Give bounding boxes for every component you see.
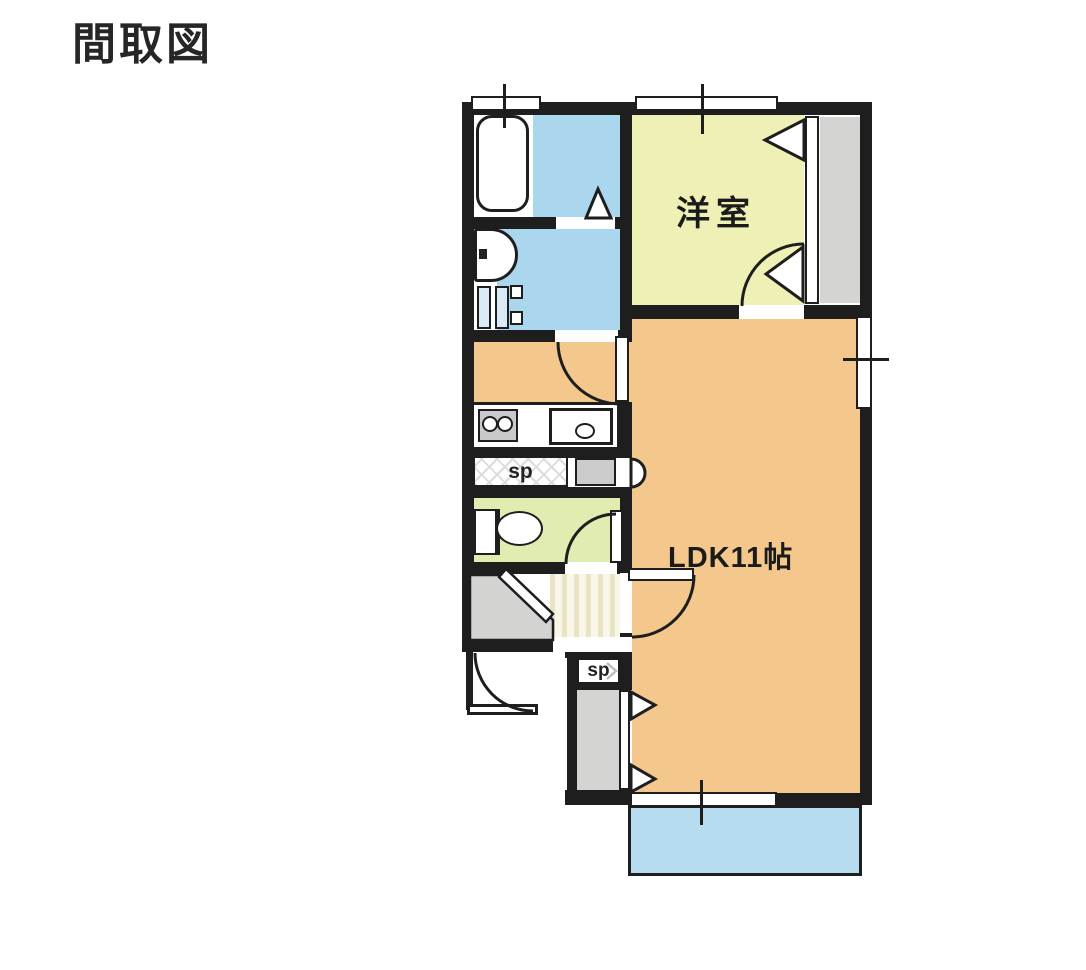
wall-sp-toilet bbox=[462, 487, 620, 498]
pipe-space-lower: sp bbox=[577, 658, 620, 684]
wall-shoebox-bottom bbox=[462, 640, 553, 652]
pipe-space-upper-label: sp bbox=[508, 460, 533, 484]
shoe-cabinet bbox=[470, 575, 553, 640]
window-tick-mark bbox=[701, 84, 704, 134]
sp-hatch-opening bbox=[620, 458, 632, 487]
sink-drain bbox=[575, 423, 595, 439]
western-room-window bbox=[635, 96, 778, 111]
entrance-door-threshold bbox=[467, 704, 538, 715]
balcony bbox=[628, 805, 862, 876]
washbasin-faucet bbox=[479, 249, 487, 259]
wall-column-divider bbox=[620, 102, 632, 342]
toilet-door-leaf bbox=[610, 510, 623, 563]
lower-closet bbox=[577, 690, 620, 790]
wall-lower-vertical bbox=[567, 652, 577, 793]
washroom-door-opening bbox=[555, 330, 618, 342]
pipe-space-upper: sp bbox=[473, 456, 568, 487]
western-room-label: 洋室 bbox=[676, 186, 756, 235]
kitchen-corridor-floor bbox=[473, 342, 632, 402]
bathtub bbox=[476, 115, 529, 212]
bathroom-window bbox=[471, 96, 541, 111]
ldk-label: LDK11帖 bbox=[668, 534, 793, 576]
window-tick-mark bbox=[700, 780, 703, 825]
entrance-door-arc bbox=[475, 653, 533, 711]
stair-diagonal-band bbox=[499, 569, 553, 622]
washer-tap-box bbox=[510, 285, 523, 299]
washer-tap-box bbox=[510, 311, 523, 325]
window-tick-mark bbox=[503, 84, 506, 128]
bathroom-floor bbox=[533, 114, 620, 217]
window-tick-mark bbox=[843, 358, 889, 361]
page-title: 間取図 bbox=[72, 8, 213, 72]
ldk-side-window bbox=[856, 316, 872, 409]
wall-outer-right bbox=[860, 102, 872, 805]
toilet-door-opening bbox=[565, 562, 617, 574]
stove-burner bbox=[497, 416, 513, 432]
stair-landing bbox=[553, 637, 632, 652]
lower-closet-door-track bbox=[619, 690, 630, 790]
ldk-door-opening bbox=[620, 573, 632, 633]
bath-door-opening bbox=[556, 217, 615, 229]
stove-burner bbox=[482, 416, 498, 432]
western-room-closet-door-track bbox=[805, 116, 819, 304]
washing-machine-pan-left bbox=[477, 286, 491, 329]
washroom-door-leaf bbox=[615, 336, 629, 402]
ldk-balcony-window bbox=[630, 792, 777, 807]
wall-right-of-sp-lower bbox=[620, 650, 632, 690]
pipe-space-upper-gray-box bbox=[575, 458, 616, 486]
washing-machine-pan-right bbox=[495, 286, 509, 329]
western-room-door-opening bbox=[739, 305, 804, 319]
staircase-treads bbox=[550, 573, 620, 639]
western-room-closet bbox=[820, 117, 860, 303]
wall-entry-stub bbox=[466, 650, 473, 710]
pipe-space-lower-label: sp bbox=[587, 660, 609, 682]
toilet-bowl bbox=[496, 511, 543, 546]
